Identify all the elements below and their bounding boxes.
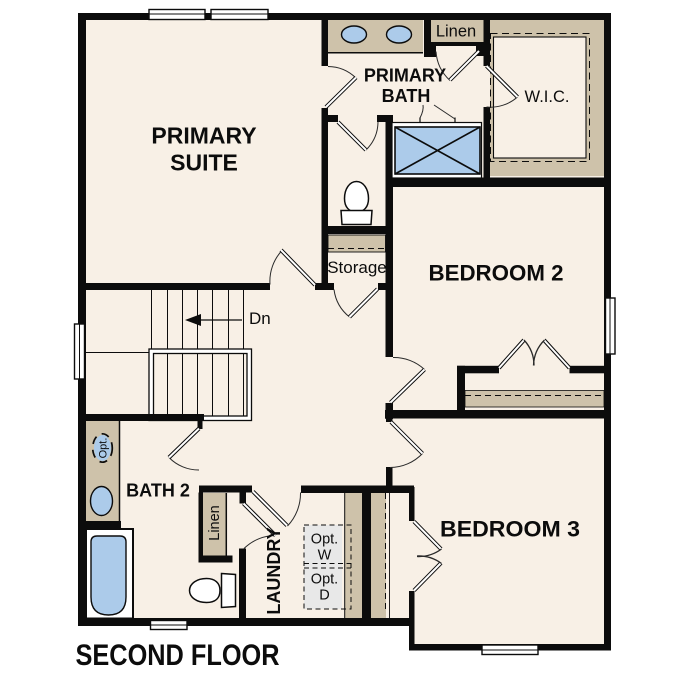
svg-text:Opt.: Opt. bbox=[311, 532, 338, 548]
svg-text:Dn: Dn bbox=[249, 309, 271, 328]
svg-text:BEDROOM 2: BEDROOM 2 bbox=[429, 261, 564, 286]
svg-text:BEDROOM 3: BEDROOM 3 bbox=[440, 517, 580, 542]
svg-text:W.I.C.: W.I.C. bbox=[525, 88, 570, 106]
svg-text:Linen: Linen bbox=[207, 505, 223, 540]
svg-text:Linen: Linen bbox=[436, 23, 476, 41]
svg-text:PRIMARY: PRIMARY bbox=[364, 66, 446, 86]
svg-text:Opt.: Opt. bbox=[98, 438, 110, 459]
svg-text:BATH: BATH bbox=[382, 86, 431, 106]
svg-text:LAUNDRY: LAUNDRY bbox=[264, 527, 284, 614]
svg-text:Storage: Storage bbox=[327, 258, 387, 277]
svg-text:SECOND FLOOR: SECOND FLOOR bbox=[76, 639, 280, 672]
svg-text:W: W bbox=[318, 548, 332, 564]
svg-text:SUITE: SUITE bbox=[170, 150, 238, 176]
svg-text:BATH 2: BATH 2 bbox=[126, 481, 190, 501]
svg-text:Opt.: Opt. bbox=[311, 572, 338, 588]
svg-text:D: D bbox=[319, 588, 329, 604]
svg-text:PRIMARY: PRIMARY bbox=[151, 123, 256, 149]
